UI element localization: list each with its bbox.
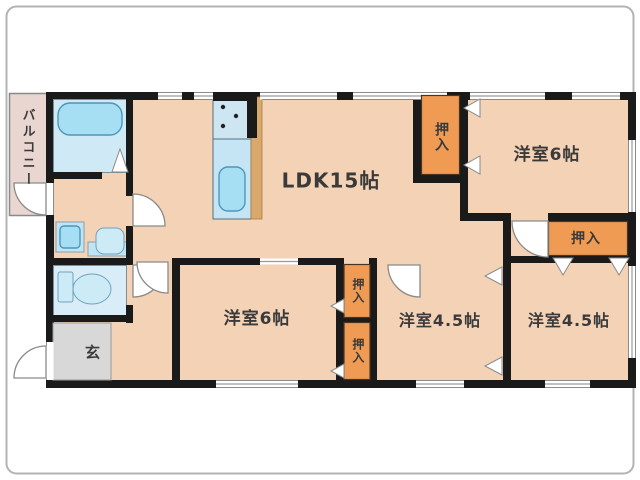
bathtub-icon bbox=[58, 103, 122, 135]
floor-plan-image: バルコニー LDK15帖 洋室6帖 洋室6帖 洋室4.5帖 洋室4.5帖 玄 押… bbox=[0, 0, 640, 480]
closet-label: 押入 bbox=[350, 278, 364, 304]
stove-burner-dot bbox=[221, 124, 225, 128]
closet-label: 押入 bbox=[571, 231, 601, 247]
room-label-bedroom-bottom-right: 洋室4.5帖 bbox=[528, 312, 610, 330]
floor-plan-drawing bbox=[0, 0, 640, 480]
room-label-bedroom-bottom-left: 洋室6帖 bbox=[224, 310, 291, 330]
stove-icon bbox=[213, 97, 251, 139]
room-label-bedroom-top-right: 洋室6帖 bbox=[514, 146, 581, 166]
closet-label: 押入 bbox=[433, 122, 449, 152]
room-label-entrance: 玄 bbox=[85, 344, 101, 361]
room-label-ldk: LDK15帖 bbox=[282, 170, 381, 193]
stove-burner-dot bbox=[221, 105, 225, 109]
closet-label: 押入 bbox=[350, 338, 364, 364]
room-label-balcony: バルコニー bbox=[19, 108, 34, 188]
entrance-tile bbox=[53, 323, 111, 380]
kitchen-sink-icon bbox=[219, 167, 245, 211]
front-door-arc bbox=[14, 346, 46, 378]
washing-machine-icon bbox=[96, 228, 124, 254]
washbasin-bowl-icon bbox=[60, 226, 80, 248]
toilet-tank-icon bbox=[58, 272, 73, 302]
toilet-bowl-icon bbox=[73, 274, 111, 304]
stove-burner-dot bbox=[234, 114, 238, 118]
room-label-bedroom-bottom-middle: 洋室4.5帖 bbox=[399, 312, 481, 330]
